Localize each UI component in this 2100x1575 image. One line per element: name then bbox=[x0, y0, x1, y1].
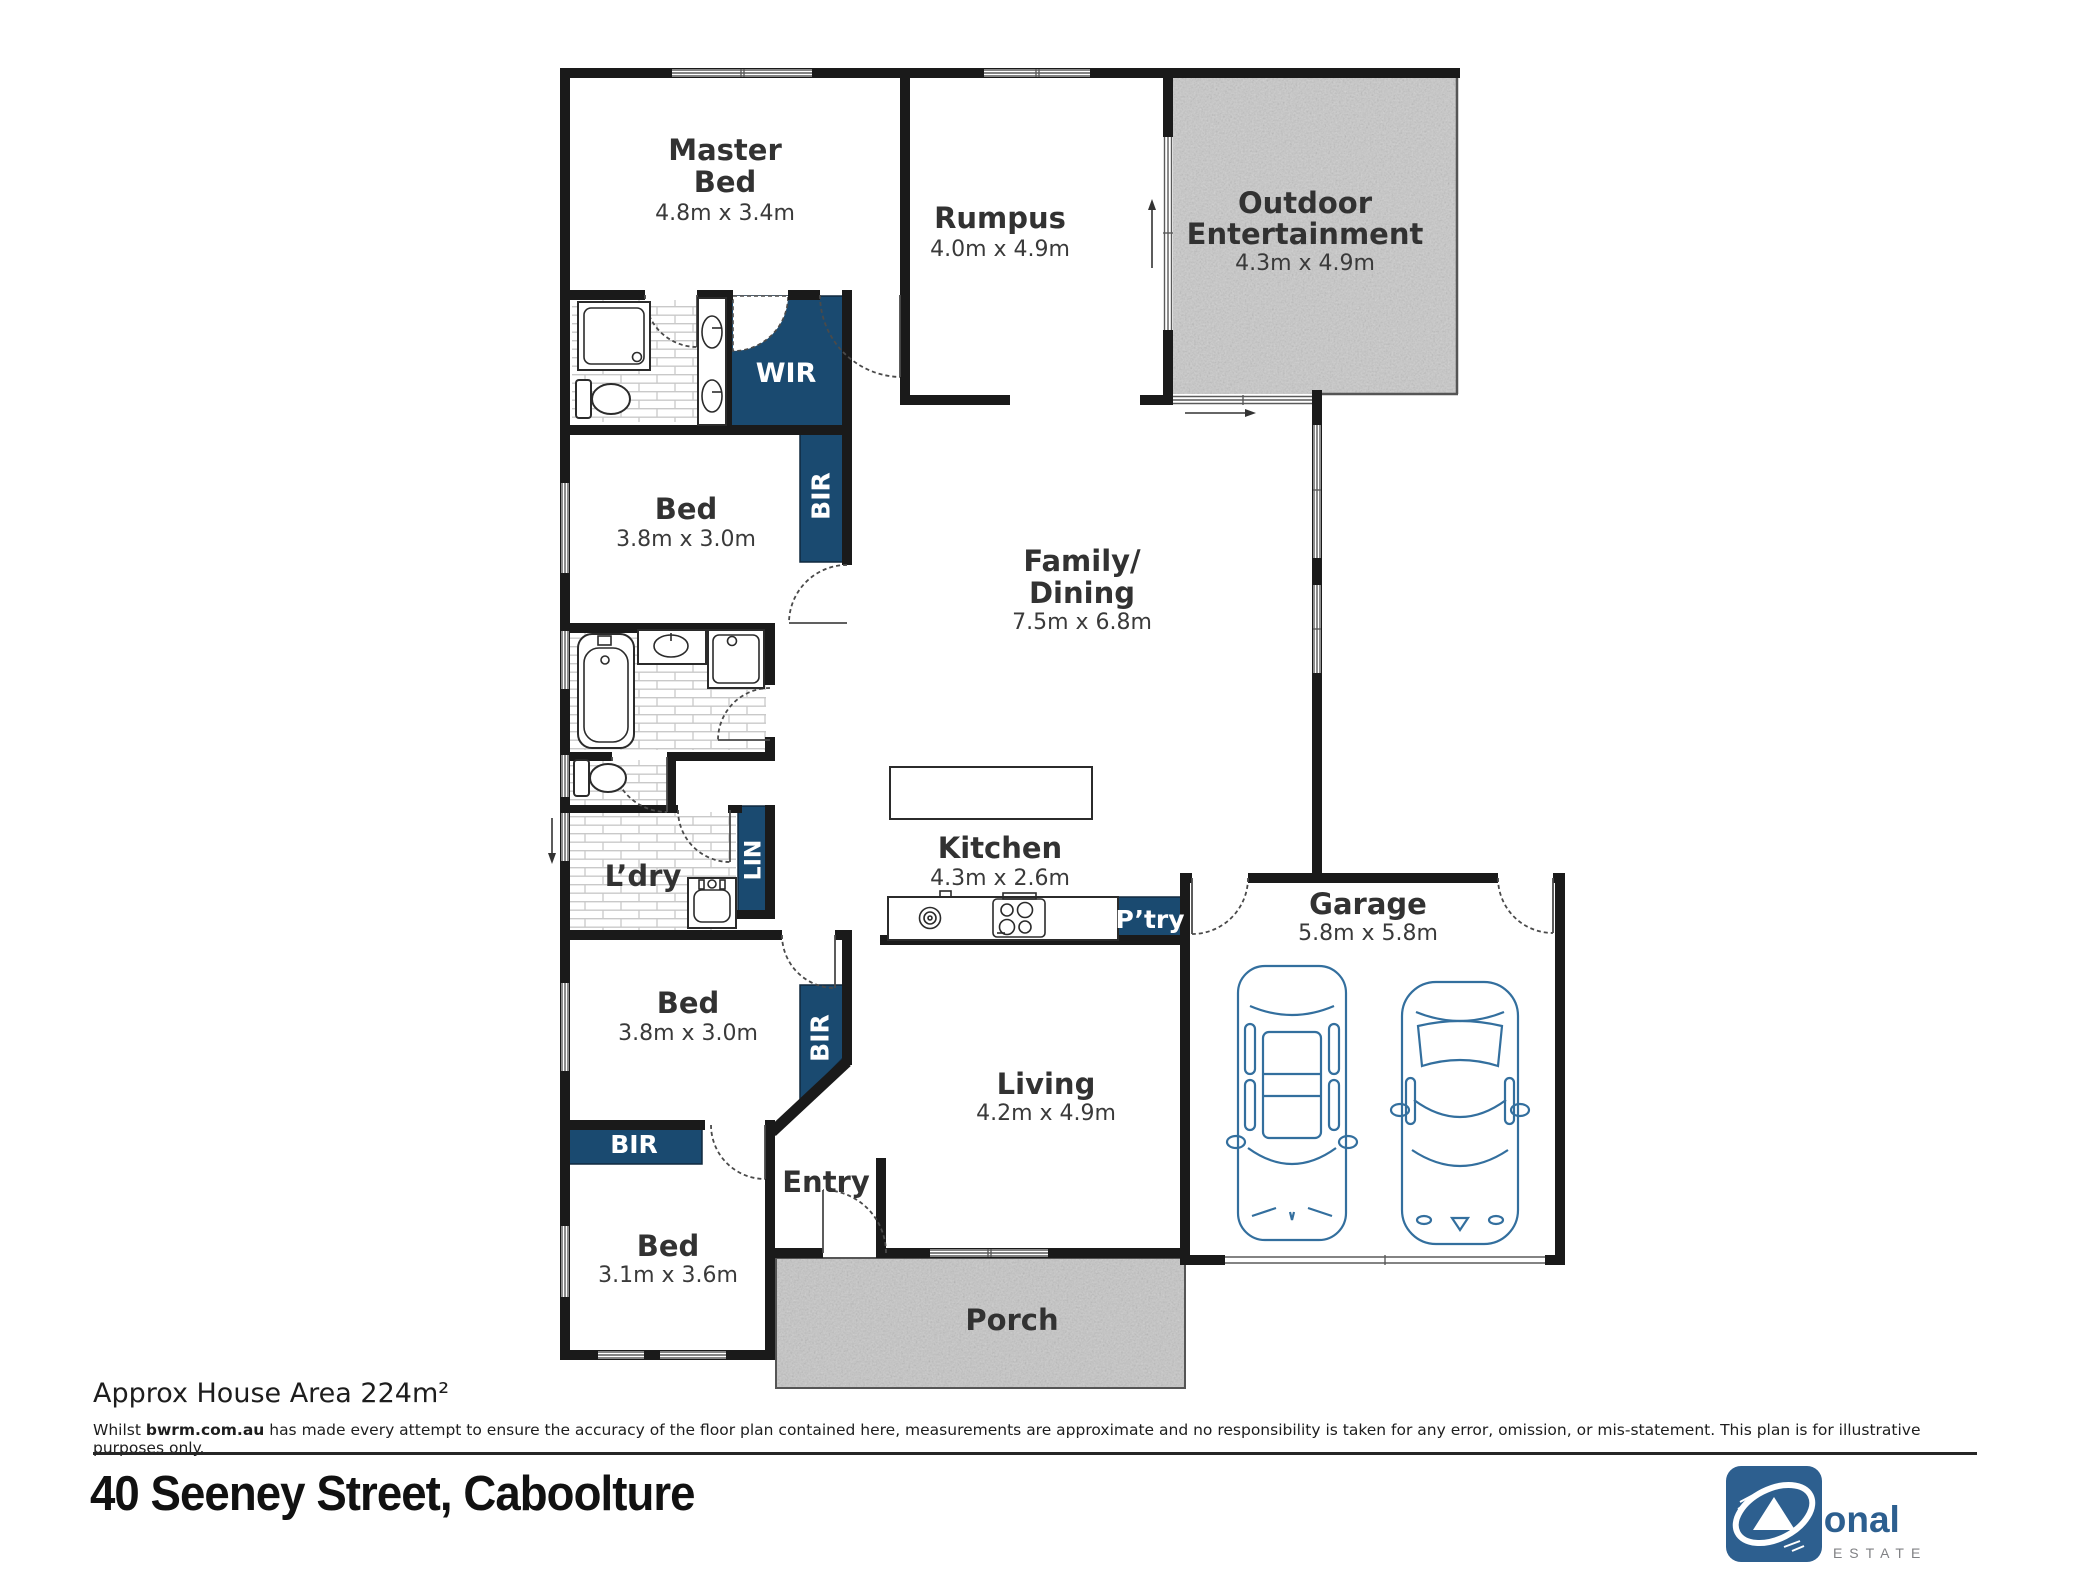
disclaimer-site: bwrm.com.au bbox=[146, 1421, 264, 1439]
car-icon bbox=[1227, 966, 1357, 1240]
room-label-entry: Entry bbox=[782, 1165, 870, 1199]
agency-logo: first national REAL ESTATE bbox=[1726, 1466, 1927, 1560]
toilet-icon bbox=[574, 760, 626, 796]
lin-label: LIN bbox=[742, 840, 767, 881]
room-label-porch: Porch bbox=[965, 1303, 1058, 1337]
svg-text:3.8m x 3.0m: 3.8m x 3.0m bbox=[618, 1021, 758, 1046]
shower-icon bbox=[708, 630, 764, 688]
wir-label: WIR bbox=[756, 358, 817, 389]
toilet-icon bbox=[576, 380, 630, 418]
sliding-door-family-outdoor bbox=[1173, 395, 1312, 417]
garage-entry-door bbox=[1192, 878, 1248, 934]
bed3-door bbox=[782, 935, 835, 988]
window bbox=[561, 483, 569, 573]
window bbox=[561, 755, 569, 797]
svg-text:3.1m x 3.6m: 3.1m x 3.6m bbox=[598, 1263, 738, 1288]
window bbox=[1313, 425, 1321, 558]
floor-plan-page: Master Bed 4.8m x 3.4m Rumpus 4.0m x 4.9… bbox=[0, 0, 2100, 1575]
window bbox=[561, 1226, 569, 1297]
garage-door bbox=[1225, 1255, 1545, 1265]
svg-text:Entertainment: Entertainment bbox=[1187, 217, 1424, 251]
room-label-rumpus: Rumpus 4.0m x 4.9m bbox=[930, 201, 1070, 262]
window bbox=[1313, 585, 1321, 673]
svg-text:Family/: Family/ bbox=[1023, 544, 1141, 578]
window bbox=[984, 69, 1090, 77]
svg-text:5.8m x 5.8m: 5.8m x 5.8m bbox=[1298, 921, 1438, 946]
garage-side-door bbox=[1498, 878, 1553, 933]
svg-text:Bed: Bed bbox=[694, 165, 757, 199]
kitchen-island bbox=[890, 767, 1092, 819]
svg-text:Dining: Dining bbox=[1029, 576, 1135, 610]
room-label-kitchen: Kitchen 4.3m x 2.6m bbox=[930, 831, 1070, 891]
svg-text:Living: Living bbox=[997, 1067, 1096, 1101]
bir-label-bed4: BIR bbox=[610, 1130, 658, 1159]
arrow-up-icon bbox=[1148, 199, 1156, 210]
svg-text:Outdoor: Outdoor bbox=[1238, 186, 1373, 220]
shower-icon bbox=[578, 302, 650, 370]
room-label-living: Living 4.2m x 4.9m bbox=[976, 1067, 1116, 1126]
vanity-icon bbox=[638, 630, 706, 664]
floor-plan-drawing: Master Bed 4.8m x 3.4m Rumpus 4.0m x 4.9… bbox=[0, 0, 2100, 1575]
svg-text:4.3m x 2.6m: 4.3m x 2.6m bbox=[930, 866, 1070, 891]
room-label-bed3: Bed 3.8m x 3.0m bbox=[618, 986, 758, 1046]
room-label-garage: Garage 5.8m x 5.8m bbox=[1298, 887, 1438, 946]
svg-text:7.5m x 6.8m: 7.5m x 6.8m bbox=[1012, 610, 1152, 635]
arrow-right-icon bbox=[1245, 409, 1256, 417]
svg-text:Garage: Garage bbox=[1309, 887, 1427, 921]
bathtub-icon bbox=[578, 634, 634, 748]
vanity-icon bbox=[698, 298, 726, 425]
window bbox=[598, 1351, 644, 1359]
sliding-door-rumpus-outdoor bbox=[1148, 137, 1173, 330]
pantry-label: P’try bbox=[1115, 905, 1184, 934]
divider-line bbox=[93, 1452, 1977, 1455]
wc-fixtures bbox=[574, 760, 626, 796]
house-area-text: Approx House Area 224m² bbox=[93, 1378, 449, 1409]
laundry-fixtures bbox=[688, 878, 736, 928]
window bbox=[930, 1249, 1048, 1257]
room-label-laundry: L’dry bbox=[605, 859, 682, 893]
arrow-down-icon bbox=[548, 853, 556, 864]
property-address: 40 Seeney Street, Caboolture bbox=[90, 1466, 695, 1522]
svg-text:Master: Master bbox=[668, 133, 782, 167]
room-label-bed4: Bed 3.1m x 3.6m bbox=[598, 1229, 738, 1288]
bed2-door bbox=[789, 565, 847, 623]
room-label-bed2: Bed 3.8m x 3.0m bbox=[616, 492, 756, 552]
laundry-tub-icon bbox=[688, 878, 736, 928]
svg-text:Bed: Bed bbox=[655, 492, 718, 526]
room-label-family: Family/ Dining 7.5m x 6.8m bbox=[1012, 544, 1152, 635]
bir-label-bed2: BIR bbox=[807, 472, 836, 520]
window bbox=[660, 1351, 726, 1359]
room-label-master: Master Bed 4.8m x 3.4m bbox=[655, 133, 795, 226]
window bbox=[561, 983, 569, 1071]
bir-label-bed3: BIR bbox=[806, 1014, 835, 1062]
svg-text:3.8m x 3.0m: 3.8m x 3.0m bbox=[616, 527, 756, 552]
first-national-logo-icon bbox=[1726, 1466, 1822, 1562]
car-icon bbox=[1391, 982, 1529, 1244]
svg-text:4.8m x 3.4m: 4.8m x 3.4m bbox=[655, 201, 795, 226]
window bbox=[561, 813, 569, 861]
bed4-door bbox=[711, 1125, 765, 1179]
svg-text:Bed: Bed bbox=[637, 1229, 700, 1263]
svg-text:4.0m x 4.9m: 4.0m x 4.9m bbox=[930, 237, 1070, 262]
window bbox=[672, 69, 812, 77]
disclaimer-prefix: Whilst bbox=[93, 1421, 146, 1439]
svg-text:4.3m x 4.9m: 4.3m x 4.9m bbox=[1235, 251, 1375, 276]
svg-text:Bed: Bed bbox=[657, 986, 720, 1020]
svg-text:Rumpus: Rumpus bbox=[934, 201, 1066, 235]
svg-text:4.2m x 4.9m: 4.2m x 4.9m bbox=[976, 1101, 1116, 1126]
laundry-wall-arrow bbox=[548, 818, 556, 864]
window bbox=[561, 631, 569, 689]
svg-text:Kitchen: Kitchen bbox=[938, 831, 1062, 865]
